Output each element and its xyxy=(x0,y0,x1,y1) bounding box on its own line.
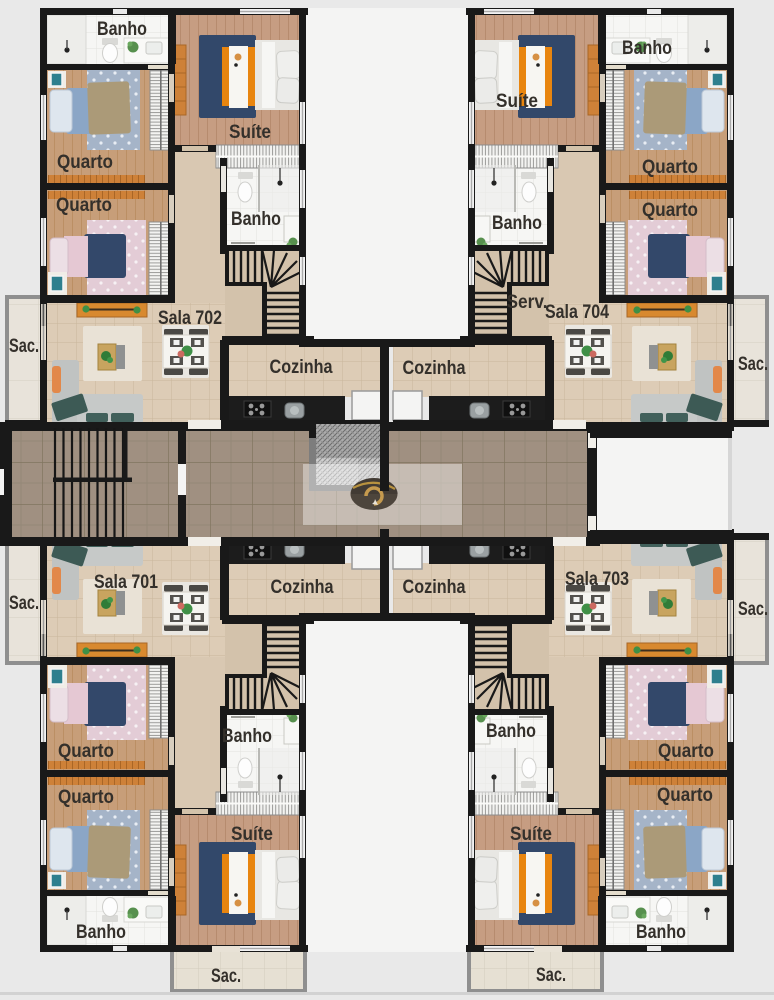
svg-text:Suíte: Suíte xyxy=(231,823,273,845)
svg-text:Suíte: Suíte xyxy=(229,121,271,143)
svg-text:Banho: Banho xyxy=(492,212,542,234)
svg-text:Banho: Banho xyxy=(76,921,126,943)
svg-text:Banho: Banho xyxy=(231,208,281,230)
svg-text:Sac.: Sac. xyxy=(9,335,39,357)
svg-text:Banho: Banho xyxy=(97,18,147,40)
svg-text:Quarto: Quarto xyxy=(642,156,698,178)
svg-text:Quarto: Quarto xyxy=(642,199,698,221)
svg-text:Sala 704: Sala 704 xyxy=(545,301,609,323)
svg-text:Sala 703: Sala 703 xyxy=(565,568,629,590)
svg-text:Banho: Banho xyxy=(486,720,536,742)
svg-text:Quarto: Quarto xyxy=(658,740,714,762)
svg-text:Sac.: Sac. xyxy=(738,598,768,620)
svg-text:Sac.: Sac. xyxy=(536,964,566,986)
svg-text:Cozinha: Cozinha xyxy=(270,356,333,378)
svg-text:Sac.: Sac. xyxy=(211,965,241,987)
svg-text:Quarto: Quarto xyxy=(657,784,713,806)
svg-text:Sala 702: Sala 702 xyxy=(158,307,222,329)
svg-text:Quarto: Quarto xyxy=(56,194,112,216)
svg-text:Quarto: Quarto xyxy=(58,786,114,808)
svg-text:Cozinha: Cozinha xyxy=(403,576,466,598)
svg-text:Banho: Banho xyxy=(622,37,672,59)
svg-text:Cozinha: Cozinha xyxy=(403,357,466,379)
svg-text:Cozinha: Cozinha xyxy=(271,576,334,598)
svg-text:Banho: Banho xyxy=(222,725,272,747)
svg-text:Quarto: Quarto xyxy=(58,740,114,762)
svg-text:Suíte: Suíte xyxy=(496,90,538,112)
svg-text:Banho: Banho xyxy=(636,921,686,943)
svg-text:Sac.: Sac. xyxy=(738,353,768,375)
svg-text:Quarto: Quarto xyxy=(57,151,113,173)
svg-text:Suíte: Suíte xyxy=(510,823,552,845)
svg-text:Serv.: Serv. xyxy=(507,291,548,313)
svg-text:Sac.: Sac. xyxy=(9,592,39,614)
svg-text:Sala 701: Sala 701 xyxy=(94,571,158,593)
